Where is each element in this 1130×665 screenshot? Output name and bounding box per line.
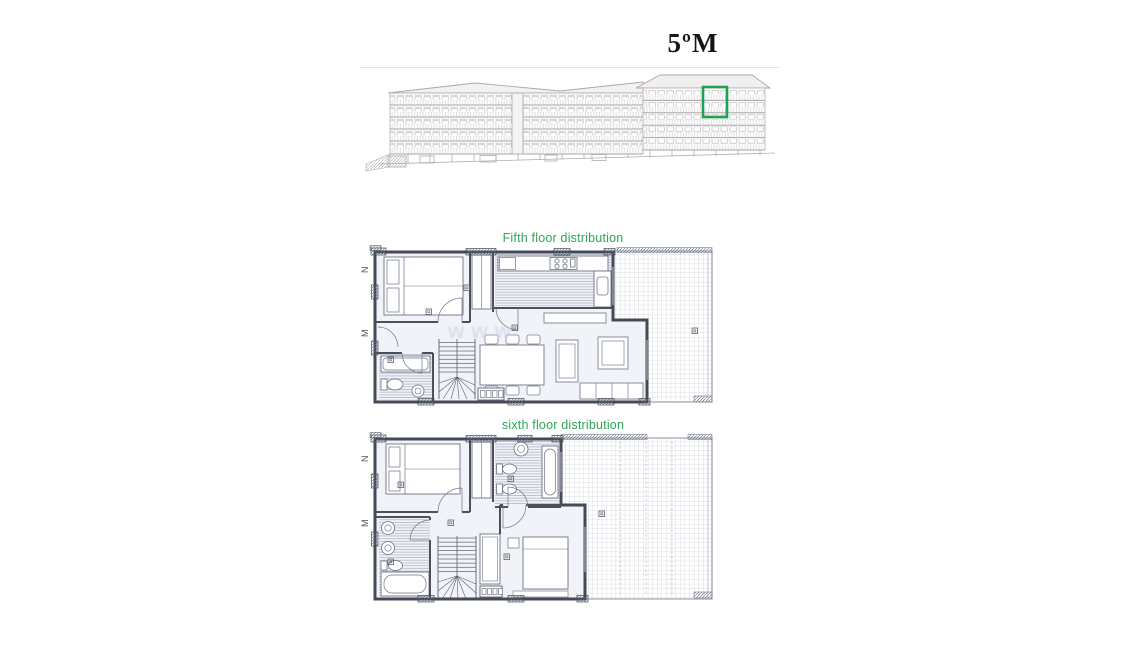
unit-marker-m: M [360,330,370,338]
stair-tower [512,93,523,154]
wardrobe-symbol [480,534,500,584]
left-building-block [388,82,643,154]
washbasin-symbol [412,385,424,397]
vent-box-symbol [478,388,504,400]
wardrobe-symbol [472,442,491,498]
washbasin-symbol [514,442,528,456]
bathtub-symbol [542,446,558,498]
north-flag [370,433,381,438]
bedroom-area [386,444,460,494]
bathroom-top-area [495,441,559,505]
bathroom-area [379,354,432,400]
north-flag [370,246,381,251]
scanned-plan-page: 5ºM [0,0,1130,665]
bathtub-symbol [381,572,429,596]
bedroom-area [384,257,463,315]
wardrobe-symbol [472,255,491,309]
sideboard-symbol [544,313,606,323]
fifth-floor-label: Fifth floor distribution [358,231,768,245]
unit-marker-n: N [360,267,370,274]
dining-table-symbol [480,335,544,395]
building-elevation-drawing [360,66,780,182]
building-elevation [360,66,780,182]
kitchen-area [495,254,611,307]
fifth-floor-plan-drawing: N M [358,245,716,412]
page-title: 5ºM [548,28,838,59]
bed-symbol [523,537,568,589]
nightstand-symbol [508,538,519,548]
toilet-symbol [381,379,403,390]
sixth-floor-plan: N M [358,432,716,604]
sixth-floor-plan-drawing: N M [358,432,716,604]
unit-marker-m: M [360,520,370,528]
vent-box-symbol [480,586,503,597]
fifth-floor-plan: N M [358,245,716,412]
sixth-floor-label: sixth floor distribution [358,418,768,432]
unit-marker-n: N [360,456,370,463]
bathroom-left-area [379,519,430,597]
